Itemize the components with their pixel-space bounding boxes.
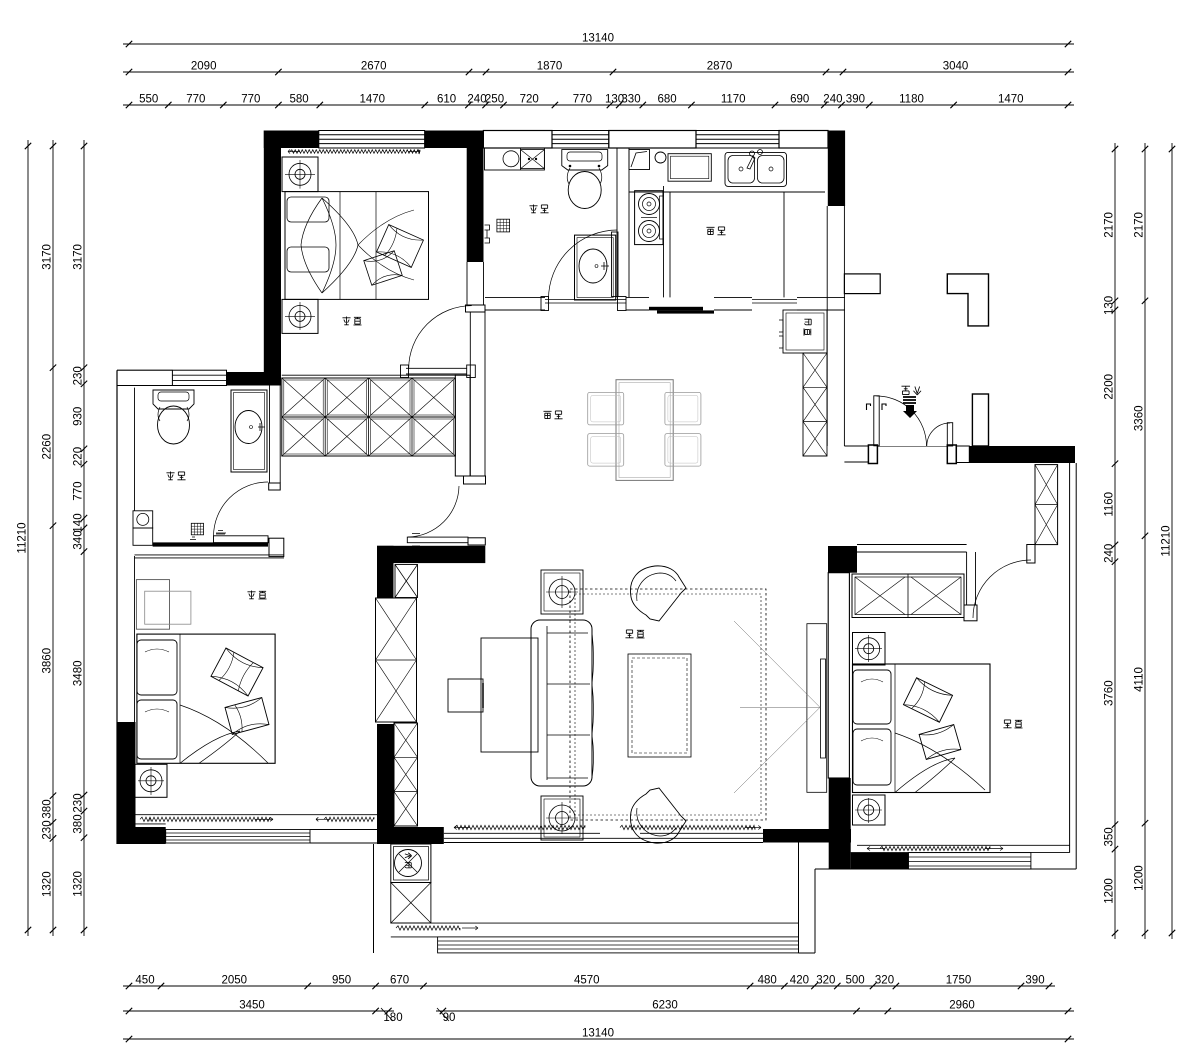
svg-text:11210: 11210 [17, 522, 29, 553]
svg-text:1320: 1320 [42, 871, 54, 897]
svg-text:720: 720 [520, 94, 539, 106]
svg-text:690: 690 [790, 94, 809, 106]
svg-text:580: 580 [290, 94, 309, 106]
svg-text:1160: 1160 [1104, 492, 1116, 517]
svg-text:770: 770 [73, 482, 85, 501]
svg-text:480: 480 [758, 975, 777, 987]
svg-text:13140: 13140 [582, 1028, 614, 1040]
svg-text:13140: 13140 [582, 33, 614, 45]
svg-text:3860: 3860 [42, 648, 54, 674]
svg-text:770: 770 [241, 94, 260, 106]
svg-text:670: 670 [390, 975, 409, 987]
svg-text:2870: 2870 [707, 61, 733, 73]
svg-text:2670: 2670 [361, 61, 387, 73]
svg-text:450: 450 [135, 975, 154, 987]
svg-text:2260: 2260 [42, 434, 54, 460]
svg-text:3360: 3360 [1134, 406, 1146, 432]
svg-text:130: 130 [1104, 296, 1116, 315]
svg-text:380: 380 [42, 799, 54, 818]
svg-text:90: 90 [443, 1012, 456, 1024]
svg-text:140: 140 [73, 513, 85, 532]
svg-text:1870: 1870 [537, 61, 563, 73]
svg-text:770: 770 [573, 94, 592, 106]
svg-text:1200: 1200 [1104, 878, 1116, 904]
svg-text:950: 950 [332, 975, 351, 987]
svg-text:770: 770 [186, 94, 205, 106]
svg-text:2960: 2960 [949, 1000, 975, 1012]
svg-text:2090: 2090 [191, 61, 217, 73]
svg-text:420: 420 [790, 975, 809, 987]
svg-text:3760: 3760 [1104, 680, 1116, 706]
svg-text:3480: 3480 [73, 661, 85, 687]
svg-text:1200: 1200 [1134, 865, 1146, 891]
svg-text:390: 390 [846, 94, 865, 106]
svg-text:320: 320 [875, 975, 894, 987]
svg-text:1170: 1170 [721, 94, 746, 106]
svg-text:1750: 1750 [946, 975, 972, 987]
svg-text:250: 250 [485, 94, 504, 106]
svg-text:4110: 4110 [1134, 667, 1146, 692]
svg-text:3170: 3170 [42, 244, 54, 270]
svg-text:4570: 4570 [574, 975, 600, 987]
svg-text:3170: 3170 [73, 244, 85, 270]
svg-text:1180: 1180 [899, 94, 924, 106]
svg-text:680: 680 [658, 94, 677, 106]
svg-text:2170: 2170 [1104, 212, 1116, 238]
svg-text:390: 390 [1025, 975, 1044, 987]
svg-text:220: 220 [73, 447, 85, 466]
svg-text:6230: 6230 [652, 1000, 678, 1012]
svg-text:380: 380 [73, 814, 85, 833]
svg-text:230: 230 [73, 366, 85, 385]
svg-text:340: 340 [73, 530, 85, 549]
svg-text:500: 500 [846, 975, 865, 987]
svg-text:2200: 2200 [1104, 374, 1116, 400]
svg-text:350: 350 [1104, 827, 1116, 846]
svg-text:230: 230 [42, 820, 54, 839]
svg-text:550: 550 [139, 94, 158, 106]
svg-text:240: 240 [823, 94, 842, 106]
svg-text:1320: 1320 [73, 871, 85, 897]
svg-text:11210: 11210 [1161, 525, 1173, 556]
svg-text:930: 930 [73, 407, 85, 426]
svg-text:2170: 2170 [1134, 212, 1146, 238]
svg-text:3040: 3040 [943, 61, 969, 73]
svg-text:320: 320 [816, 975, 835, 987]
svg-text:230: 230 [73, 793, 85, 812]
svg-text:2050: 2050 [222, 975, 248, 987]
svg-text:1470: 1470 [998, 94, 1024, 106]
svg-text:240: 240 [1104, 544, 1116, 563]
svg-text:3450: 3450 [239, 1000, 265, 1012]
svg-text:330: 330 [621, 94, 640, 106]
svg-text:240: 240 [467, 94, 486, 106]
svg-text:610: 610 [437, 94, 456, 106]
svg-text:1470: 1470 [360, 94, 386, 106]
